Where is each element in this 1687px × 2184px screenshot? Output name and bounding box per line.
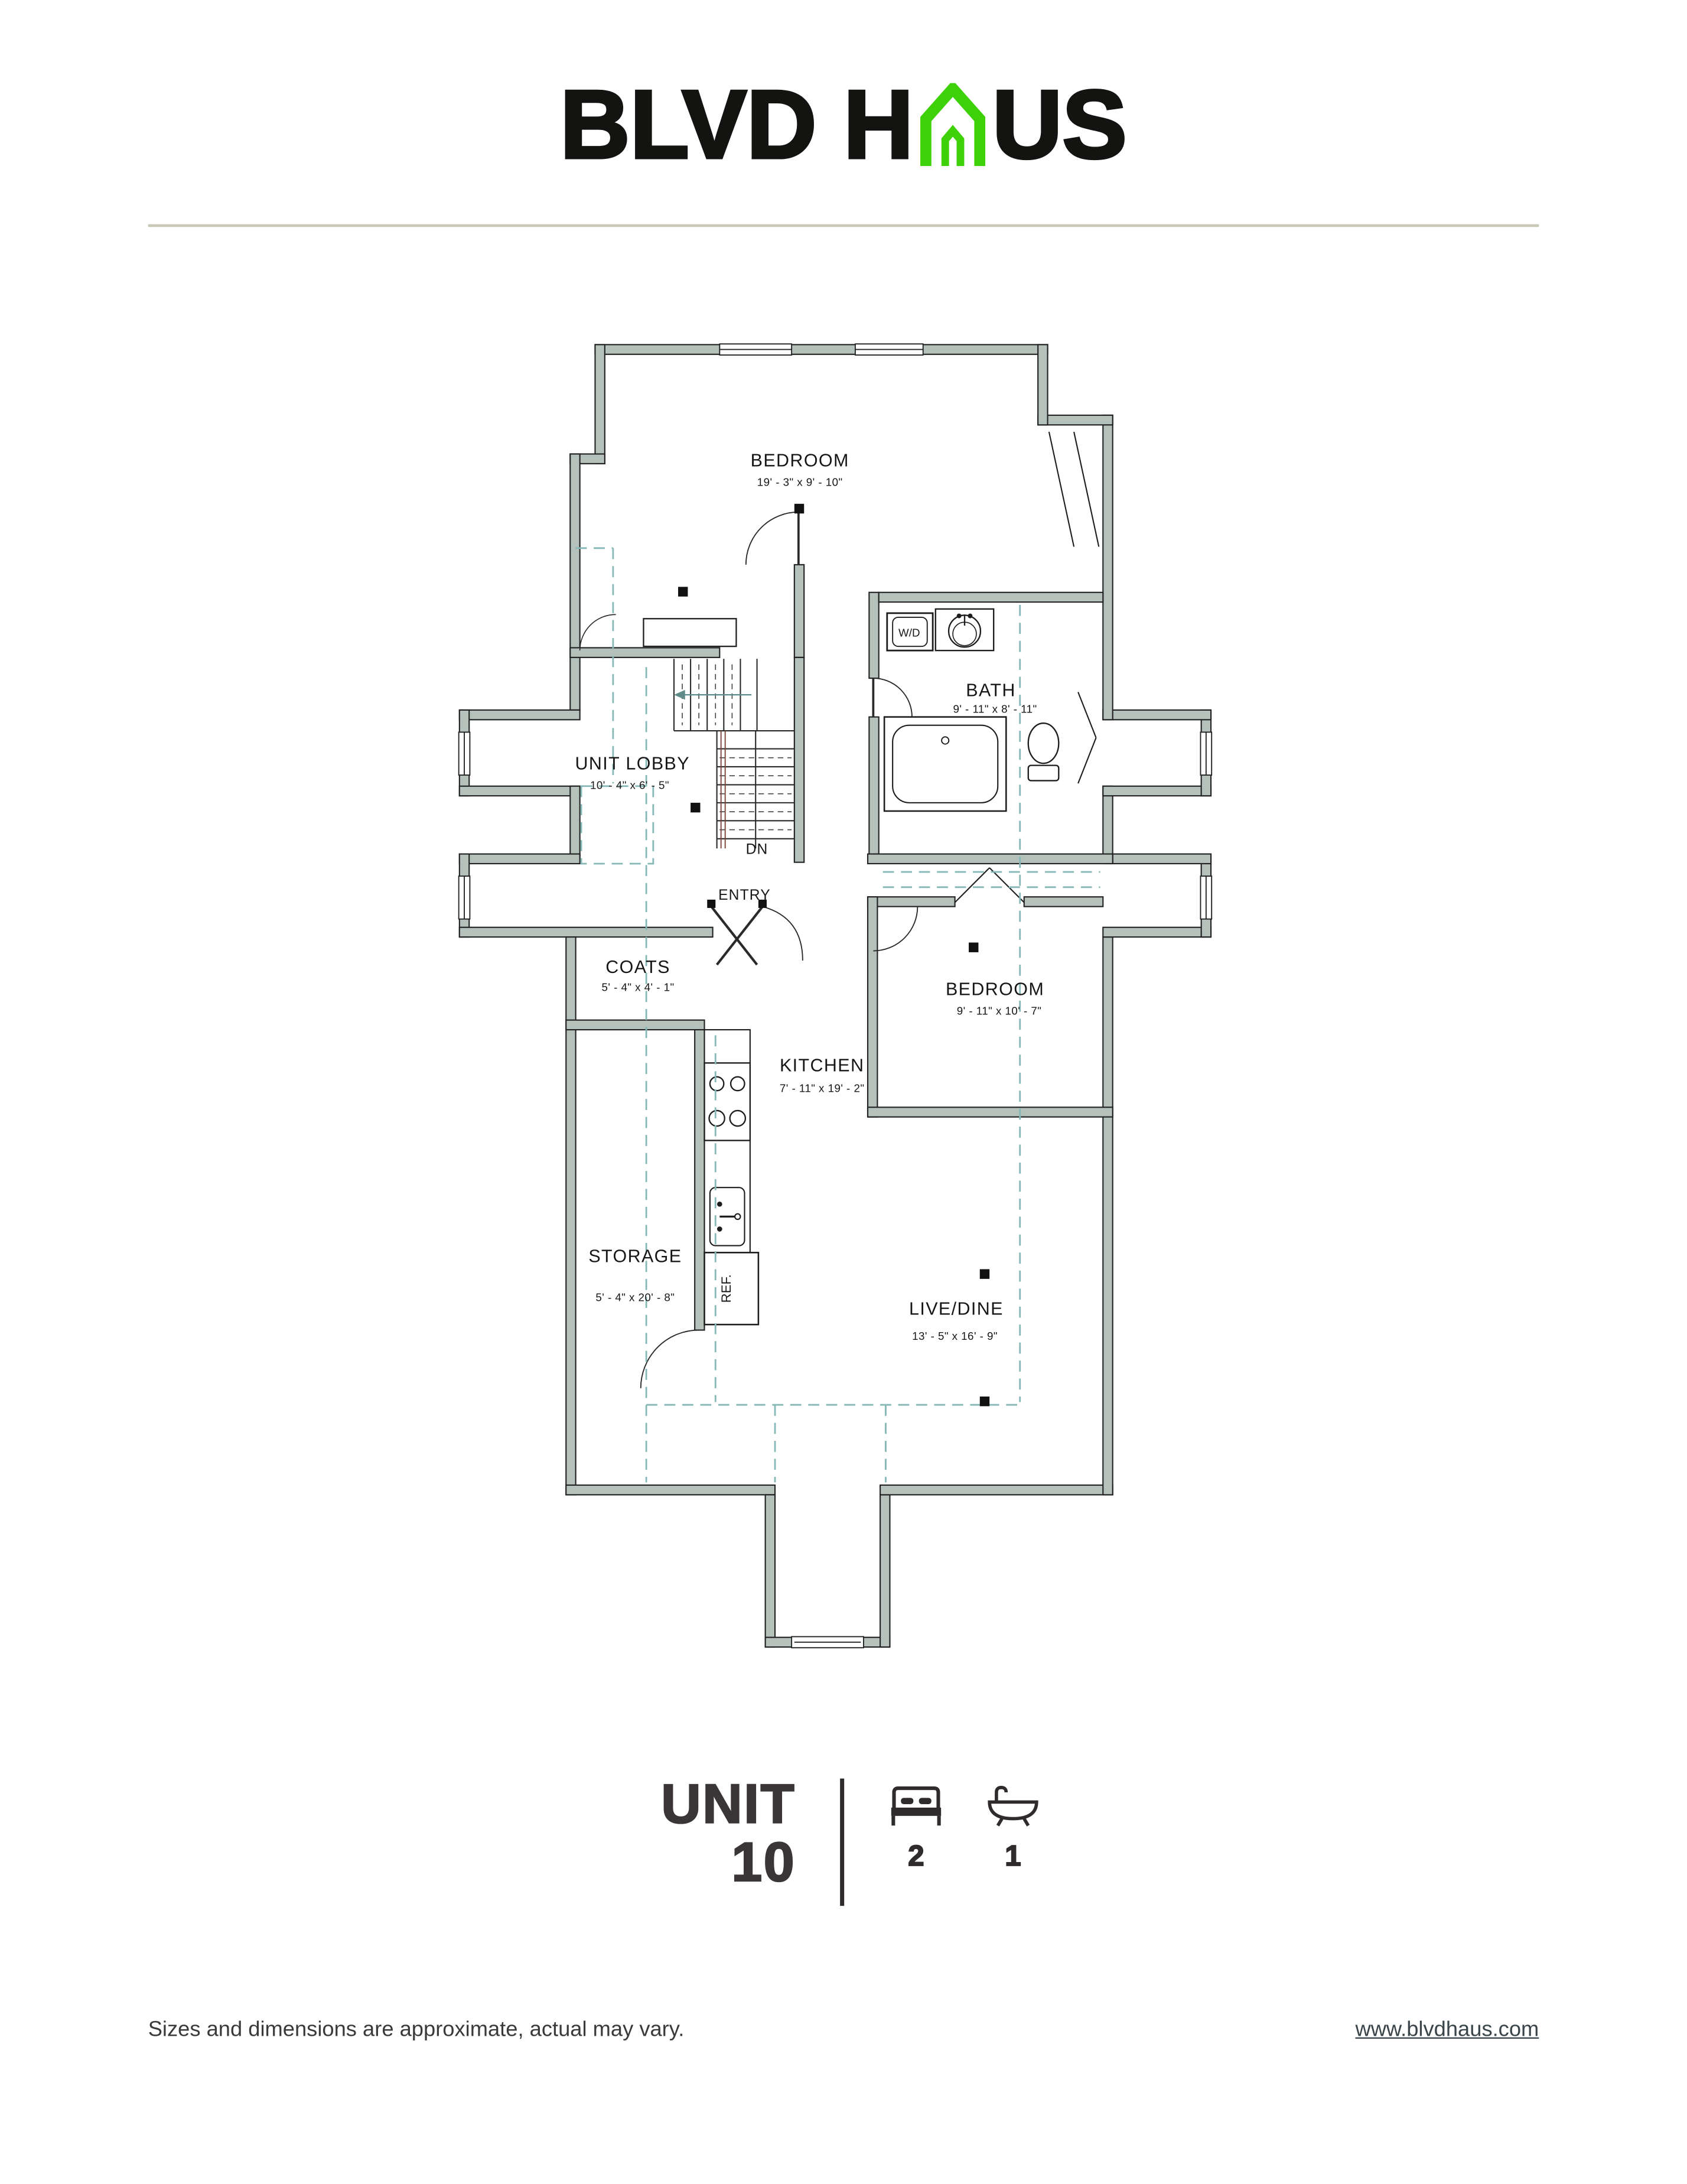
bath-icon <box>985 1784 1041 1828</box>
disclaimer-text: Sizes and dimensions are approximate, ac… <box>148 2018 685 2043</box>
window <box>855 344 923 355</box>
window <box>1200 732 1211 775</box>
brand-logo: BLVD H US <box>0 76 1687 173</box>
bathroom-count-value: 1 <box>982 1841 1043 1874</box>
unit-name: UNIT 10 <box>553 1776 796 1892</box>
unit-label: UNIT <box>553 1776 796 1834</box>
room-dims-bath: 9' - 11" x 8' - 11" <box>953 703 1037 715</box>
entry-door-threshold <box>792 1636 864 1648</box>
zigzag-door <box>1078 692 1096 783</box>
unit-number: 10 <box>553 1834 796 1892</box>
page: BLVD H US <box>0 0 1687 2184</box>
unit-summary: UNIT 10 2 1 <box>0 1776 1687 1914</box>
label-wd: W/D <box>898 627 920 639</box>
logo-text-right: US <box>992 76 1127 173</box>
bifold-doors <box>955 868 1024 903</box>
walls <box>460 344 1211 1647</box>
website-link[interactable]: www.blvdhaus.com <box>1355 2018 1539 2043</box>
bathtub-icon <box>884 717 1006 811</box>
room-dims-kitchen: 7' - 11" x 19' - 2" <box>780 1082 865 1095</box>
page-footer: Sizes and dimensions are approximate, ac… <box>148 2018 1539 2043</box>
toilet-icon <box>1028 723 1059 780</box>
room-dims-unit-lobby: 10' - 4" x 6' - 5" <box>590 779 669 791</box>
label-ref: REF. <box>719 1274 734 1303</box>
room-labels: BEDROOM 19' - 3" x 9' - 10" BATH 9' - 11… <box>575 451 1044 1342</box>
fixtures <box>705 432 1099 1324</box>
label-entry: ENTRY <box>718 887 771 903</box>
bedroom-count: 2 <box>885 1784 946 1874</box>
closet-door-slashes <box>1049 432 1099 546</box>
room-label-live-dine: LIVE/DINE <box>909 1299 1004 1319</box>
unit-divider <box>840 1779 843 1906</box>
room-label-kitchen: KITCHEN <box>780 1055 864 1075</box>
logo-text-left: BLVD H <box>560 76 913 173</box>
room-label-unit-lobby: UNIT LOBBY <box>575 754 689 774</box>
room-label-bath: BATH <box>966 680 1016 700</box>
room-label-storage: STORAGE <box>588 1246 682 1267</box>
arrow-head <box>674 690 685 699</box>
room-dims-coats: 5' - 4" x 4' - 1" <box>601 981 674 994</box>
window <box>459 732 470 775</box>
divider-rule <box>148 224 1539 227</box>
bed-icon <box>888 1784 944 1828</box>
bathroom-count: 1 <box>982 1784 1043 1874</box>
room-label-coats: COATS <box>605 957 670 977</box>
room-label-bedroom-1: BEDROOM <box>751 451 849 471</box>
floor-plan-svg: BEDROOM 19' - 3" x 9' - 10" BATH 9' - 11… <box>457 339 1220 1661</box>
house-icon <box>920 83 985 167</box>
bath-sink-icon <box>936 609 994 650</box>
floor-plan: BEDROOM 19' - 3" x 9' - 10" BATH 9' - 11… <box>457 339 1220 1661</box>
window <box>1200 876 1211 919</box>
room-dims-bedroom-2: 9' - 11" x 10' - 7" <box>957 1004 1042 1017</box>
room-dims-live-dine: 13' - 5" x 16' - 9" <box>912 1330 998 1342</box>
stove-icon <box>705 1063 750 1140</box>
label-dn: DN <box>746 842 768 858</box>
room-dims-storage: 5' - 4" x 20' - 8" <box>595 1291 675 1303</box>
bedroom-count-value: 2 <box>885 1841 946 1874</box>
room-label-bedroom-2: BEDROOM <box>946 979 1044 1000</box>
room-dims-bedroom-1: 19' - 3" x 9' - 10" <box>757 476 843 488</box>
window <box>719 344 792 355</box>
lobby-cabinet <box>643 619 736 646</box>
window <box>459 876 470 919</box>
